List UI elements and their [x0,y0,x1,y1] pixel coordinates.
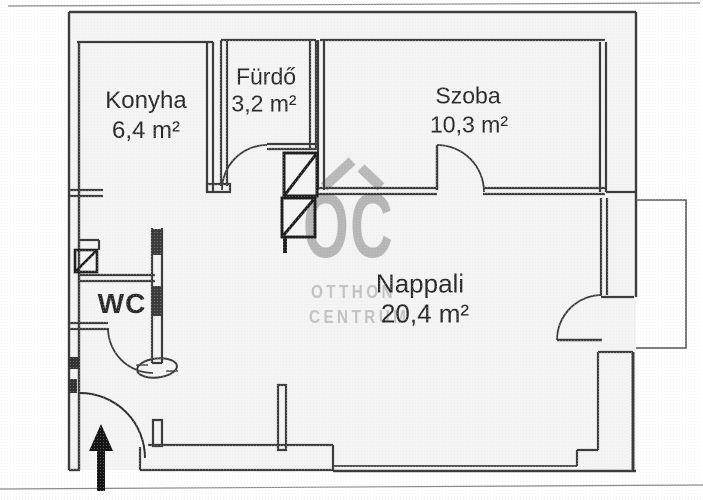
floor-plan-drawing [0,0,703,500]
entrance-arrow-icon [89,424,113,491]
bedroom-door [437,145,484,192]
room-area-furdo: 3,2 m² [231,91,296,118]
floor-plan-page: OC OTTHON CENTRUM [0,0,703,500]
room-label-nappali: Nappali [376,269,464,300]
room-area-konyha: 6,4 m² [112,117,180,145]
balcony-outline [636,200,686,348]
room-area-nappali: 20,4 m² [381,299,469,330]
wc-door-arc [108,328,153,373]
room-label-konyha: Konyha [105,87,186,115]
entrance-door-arc [80,393,145,458]
right-wall [577,198,634,466]
balcony-door [557,295,602,340]
hall-bottom-walls [140,385,333,470]
room-label-szoba: Szoba [435,83,500,110]
room-label-wc: WC [98,288,147,320]
room-area-szoba: 10,3 m² [430,112,508,139]
room-label-furdo: Fürdő [236,64,296,91]
shaft-icon-lower [282,198,315,253]
shaft-icon-upper [284,153,317,196]
washbasin-icon [136,356,178,379]
